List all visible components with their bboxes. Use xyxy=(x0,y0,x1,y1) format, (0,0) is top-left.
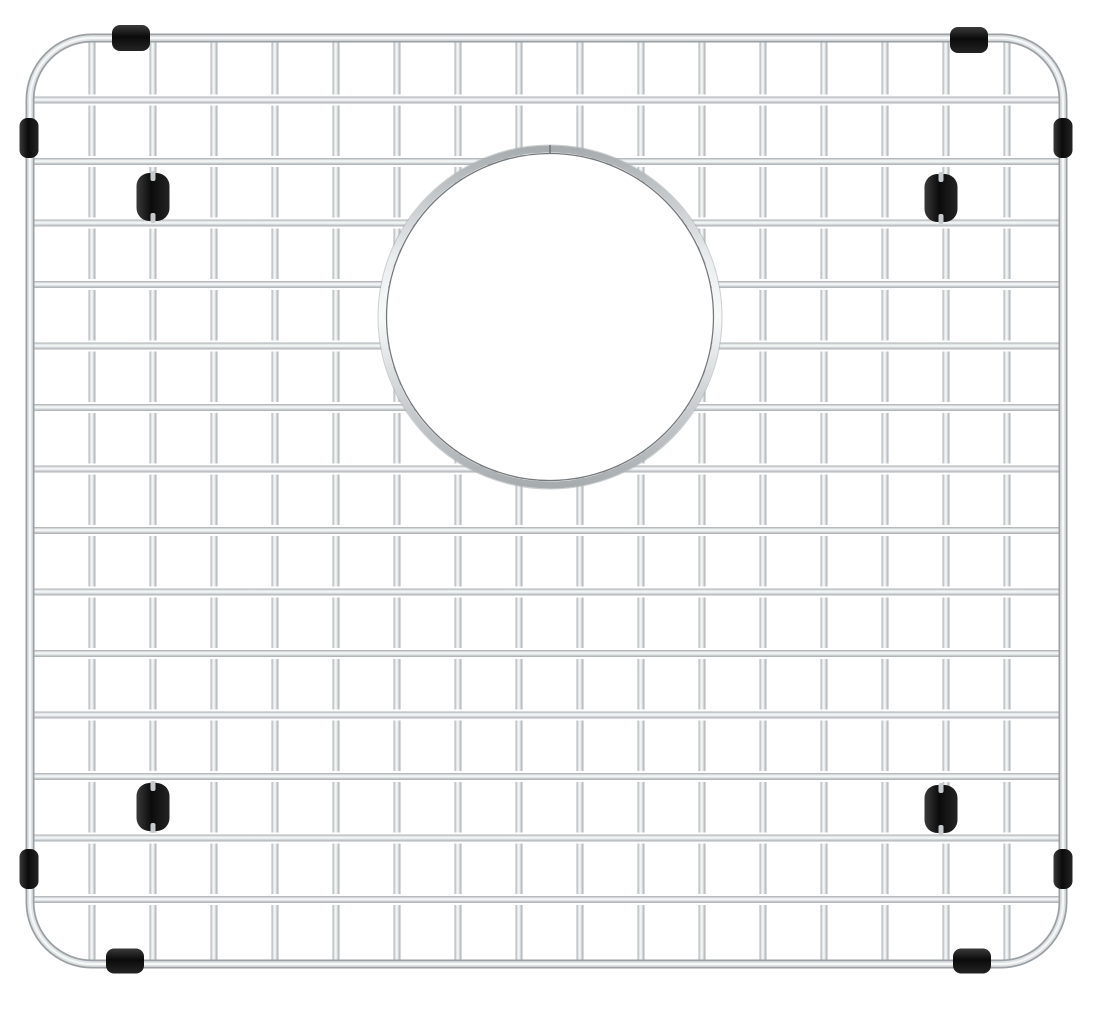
rubber-feet xyxy=(137,171,958,835)
grid-wire-vertical xyxy=(394,38,401,964)
drain-ring-seam xyxy=(549,145,551,154)
grid-wire-horizontal xyxy=(30,220,1063,227)
rubber-foot-upper-left xyxy=(137,171,170,223)
rubber-foot-upper-right xyxy=(925,172,958,224)
grid-wire-horizontal xyxy=(30,158,1063,165)
grid-wire-horizontal xyxy=(30,281,1063,288)
edge-bumper-bumper-left-lower xyxy=(20,849,39,889)
edge-bumper-bumper-left-upper xyxy=(20,118,39,158)
sink-grid-illustration xyxy=(0,0,1100,1012)
grid-wire-vertical xyxy=(516,38,523,964)
grid-wire-horizontal xyxy=(30,712,1063,719)
grid-wire-vertical xyxy=(272,38,279,964)
foot-wire-notch-bottom xyxy=(939,214,944,224)
grid-wire-horizontal xyxy=(30,404,1063,411)
grid-wires xyxy=(30,38,1063,964)
grid-wire-vertical xyxy=(699,38,706,964)
foot-wire-notch-top xyxy=(151,781,156,791)
edge-bumper-bumper-right-upper xyxy=(1054,118,1073,158)
grid-wire-horizontal xyxy=(30,466,1063,473)
grid-wire-horizontal xyxy=(30,97,1063,104)
rubber-bumpers xyxy=(20,25,1073,974)
product-photo xyxy=(0,0,1100,1012)
frame-body xyxy=(30,38,1063,964)
drain-opening xyxy=(378,145,722,489)
foot-wire-notch-bottom xyxy=(939,825,944,835)
grid-wire-horizontal xyxy=(30,650,1063,657)
grid-wire-horizontal xyxy=(30,835,1063,842)
edge-bumper-bumper-top-left xyxy=(112,25,150,51)
foot-wire-notch-bottom xyxy=(151,823,156,833)
foot-wire-notch-top xyxy=(939,783,944,793)
rubber-foot-lower-left xyxy=(137,781,170,833)
outer-frame xyxy=(30,38,1063,964)
edge-bumper-bumper-right-lower xyxy=(1054,849,1073,889)
grid-wire-vertical xyxy=(89,38,96,964)
grid-wire-vertical xyxy=(333,38,340,964)
grid-wire-horizontal xyxy=(30,896,1063,903)
grid-wire-horizontal xyxy=(30,343,1063,350)
foot-wire-notch-bottom xyxy=(151,213,156,223)
edge-bumper-bumper-bottom-left xyxy=(106,949,144,974)
foot-wire-notch-top xyxy=(939,172,944,182)
foot-wire-notch-top xyxy=(151,171,156,181)
rubber-foot-lower-right xyxy=(925,783,958,835)
grid-wire-vertical xyxy=(211,38,218,964)
grid-wire-vertical xyxy=(1004,38,1011,964)
grid-wire-horizontal xyxy=(30,589,1063,596)
frame-outline xyxy=(30,38,1063,964)
frame-highlight xyxy=(30,38,1063,964)
grid-wire-vertical xyxy=(577,38,584,964)
grid-wire-horizontal xyxy=(30,773,1063,780)
grid-wire-vertical xyxy=(760,38,767,964)
grid-wire-vertical xyxy=(821,38,828,964)
grid-wire-vertical xyxy=(882,38,889,964)
drain-ring xyxy=(382,149,718,485)
drain-ring-inner-edge xyxy=(387,154,714,481)
grid-wire-horizontal xyxy=(30,527,1063,534)
edge-bumper-bumper-bottom-right xyxy=(953,949,991,974)
edge-bumper-bumper-top-right xyxy=(950,27,988,53)
